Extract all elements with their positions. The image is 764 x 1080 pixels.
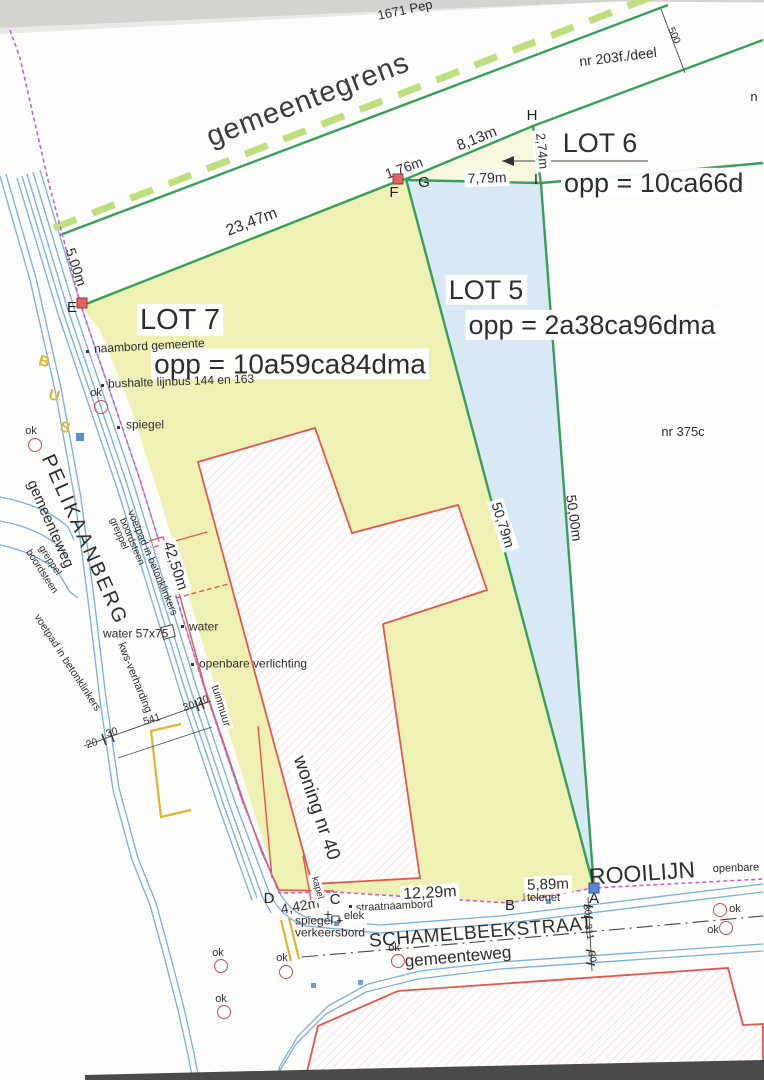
note-kws-verharding: kws-verharding bbox=[115, 641, 154, 714]
rooilijn-label: ROOILIJN bbox=[588, 857, 696, 888]
survey-point-C: C bbox=[330, 892, 341, 908]
ok-circle bbox=[713, 903, 727, 917]
survey-point-F: F bbox=[389, 185, 398, 201]
note-spiegel-top: spiegel bbox=[126, 419, 164, 432]
parcel-nr203f: nr 203f./deel bbox=[578, 45, 657, 69]
note-water: water bbox=[189, 621, 218, 634]
lot5-area: opp = 2a38ca96dma bbox=[466, 310, 719, 340]
dim-7-79: 7,79m bbox=[464, 169, 509, 187]
dim-23-47: 23,47m bbox=[224, 206, 280, 241]
ok-label: ok bbox=[729, 904, 741, 916]
ok-circle bbox=[28, 438, 42, 452]
note-bushalte: bushalte lijnbus 144 en 163 bbox=[108, 373, 254, 391]
survey-point-G: G bbox=[418, 175, 430, 191]
dim-50-79: 50,79m bbox=[487, 497, 519, 552]
survey-marker-E bbox=[77, 298, 88, 309]
gemeentegrens-label: gemeentegrens bbox=[202, 47, 413, 152]
survey-point-D: D bbox=[264, 891, 275, 907]
lot5-title: LOT 5 bbox=[446, 275, 527, 305]
dim-30-left: 30 bbox=[105, 726, 119, 740]
ok-circle bbox=[391, 954, 405, 968]
survey-point-E: E bbox=[67, 300, 77, 316]
ok-label: ok bbox=[388, 943, 400, 955]
dim-30-right: 30 bbox=[182, 700, 196, 714]
ok-circle bbox=[279, 965, 293, 979]
lot6-title: LOT 6 bbox=[560, 128, 641, 158]
parcel-1671-pep: 1671 Pep bbox=[376, 0, 433, 22]
survey-marker-F bbox=[393, 174, 404, 185]
survey-point-I: I bbox=[534, 172, 538, 188]
dim-30-a-bottom: 30 bbox=[585, 951, 597, 964]
note-verkeersbord: verkeersbord bbox=[295, 927, 365, 940]
lot7-title: LOT 7 bbox=[137, 304, 223, 336]
ok-circle bbox=[214, 959, 228, 973]
note-elek: elek bbox=[341, 910, 367, 924]
ok-label: ok bbox=[25, 426, 37, 438]
bus-letter-s: S bbox=[58, 419, 72, 437]
ok-label: ok bbox=[90, 388, 102, 400]
note-voetpad-branch: voetpad in betonklinkers bbox=[32, 613, 103, 714]
dim-541: 541 bbox=[142, 712, 162, 728]
note-straatnaambord: straatnaambord bbox=[356, 899, 434, 915]
dim-311: 311 bbox=[581, 923, 594, 941]
note-water-57x75: water 57x75 bbox=[103, 628, 168, 641]
dim-50-00: 50,00m bbox=[563, 494, 584, 542]
ok-label: ok bbox=[215, 994, 227, 1006]
ok-circle bbox=[217, 1005, 231, 1019]
ok-circle bbox=[94, 400, 108, 414]
labels-layer: LOT 7opp = 10a59ca84dmaLOT 5opp = 2a38ca… bbox=[0, 0, 764, 1080]
ok-label: ok bbox=[276, 953, 288, 965]
ok-label: ok bbox=[212, 948, 224, 960]
lot6-area: opp = 10ca66d bbox=[561, 168, 746, 198]
note-openbare-verlichting: openbare verlichting bbox=[199, 658, 307, 671]
dim-2-74: 2,74m bbox=[532, 129, 552, 173]
note-tuinmuur: tuinmuur bbox=[206, 681, 233, 732]
bus-letter-u: U bbox=[47, 387, 62, 405]
survey-point-B: B bbox=[505, 898, 515, 914]
parcel-nr375c: nr 375c bbox=[661, 425, 704, 439]
dim-8-13: 8,13m bbox=[455, 124, 500, 154]
dim-20-right: 20 bbox=[196, 694, 210, 708]
survey-point-H: H bbox=[527, 108, 538, 124]
note-telenet: telenet bbox=[527, 893, 560, 905]
parcel-nr-cut: n bbox=[750, 90, 757, 104]
dim-5-00: 5,00m bbox=[63, 246, 89, 288]
ok-label: ok bbox=[707, 925, 719, 937]
bus-letter-b: B bbox=[37, 353, 52, 371]
openbare-label: openbare bbox=[713, 862, 760, 875]
survey-marker-A bbox=[589, 883, 600, 894]
cadastral-plan-canvas: LOT 7opp = 10a59ca84dmaLOT 5opp = 2a38ca… bbox=[0, 0, 764, 1080]
note-woning-nr40: woning nr 40 bbox=[287, 750, 345, 866]
dim-500: 500 bbox=[665, 26, 682, 46]
ok-circle bbox=[719, 921, 733, 935]
dim-20-left: 20 bbox=[85, 737, 99, 751]
